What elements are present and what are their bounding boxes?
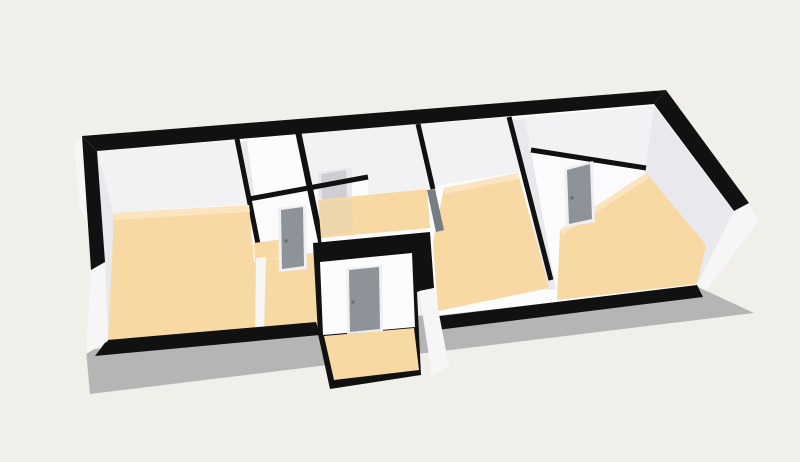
closet-door-icon <box>281 207 304 269</box>
vestibule-door-icon <box>349 267 380 332</box>
hall-floor-dim <box>320 199 353 236</box>
door-handle-icon <box>351 300 354 303</box>
living-room-floor <box>108 205 260 341</box>
door-handle-icon <box>570 196 573 199</box>
living-room-back-wall <box>97 140 248 213</box>
floor-plan-canvas[interactable] <box>0 0 800 462</box>
floor-plan-viewport[interactable] <box>0 0 800 462</box>
door-handle-icon <box>284 239 287 242</box>
right-room-door-icon <box>567 164 592 224</box>
